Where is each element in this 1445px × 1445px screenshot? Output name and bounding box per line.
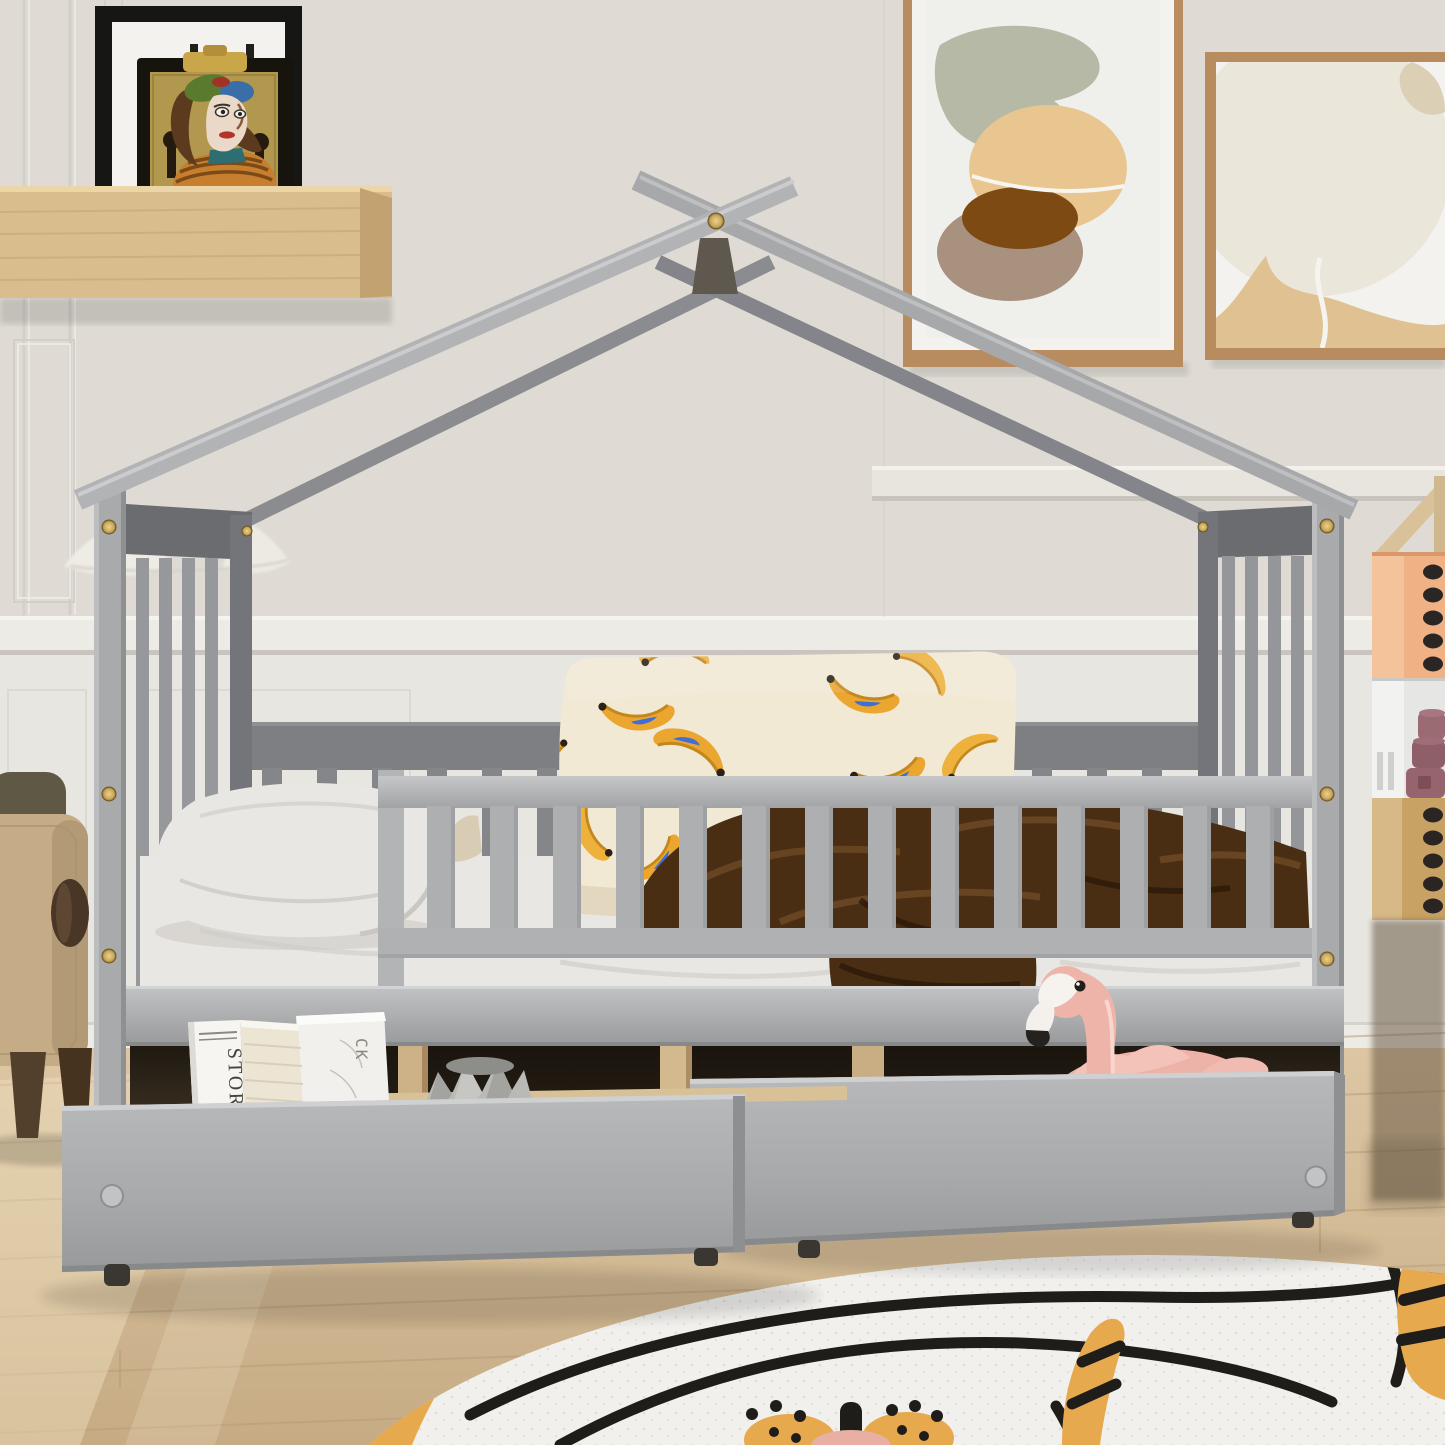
book2-spine-text: CK xyxy=(352,1038,371,1061)
toy-storage-stack xyxy=(1372,476,1445,1200)
guard-rail-bottom xyxy=(378,928,1340,958)
cubist-portrait xyxy=(150,70,278,192)
framed-portrait-print xyxy=(95,6,302,192)
shelf-board xyxy=(0,186,392,298)
abstract-frame-right xyxy=(1184,28,1445,360)
wood-toy-box xyxy=(1372,798,1445,920)
product-photo-kids-house-bed: CK STORIES xyxy=(0,0,1445,1445)
peach-toy-box xyxy=(1372,552,1445,678)
guard-rail-top xyxy=(378,776,1340,808)
right-drawer-knob[interactable] xyxy=(1306,1167,1327,1188)
left-drawer-knob[interactable] xyxy=(101,1185,123,1207)
abstract-art-frames xyxy=(903,0,1445,376)
